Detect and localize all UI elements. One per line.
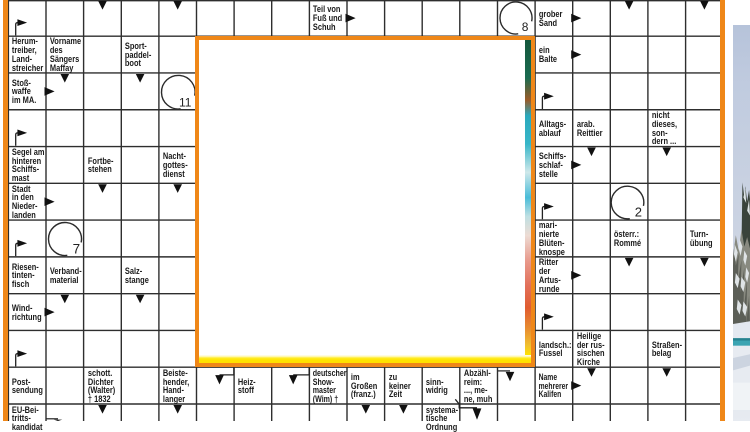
svg-text:2: 2 <box>635 204 642 219</box>
